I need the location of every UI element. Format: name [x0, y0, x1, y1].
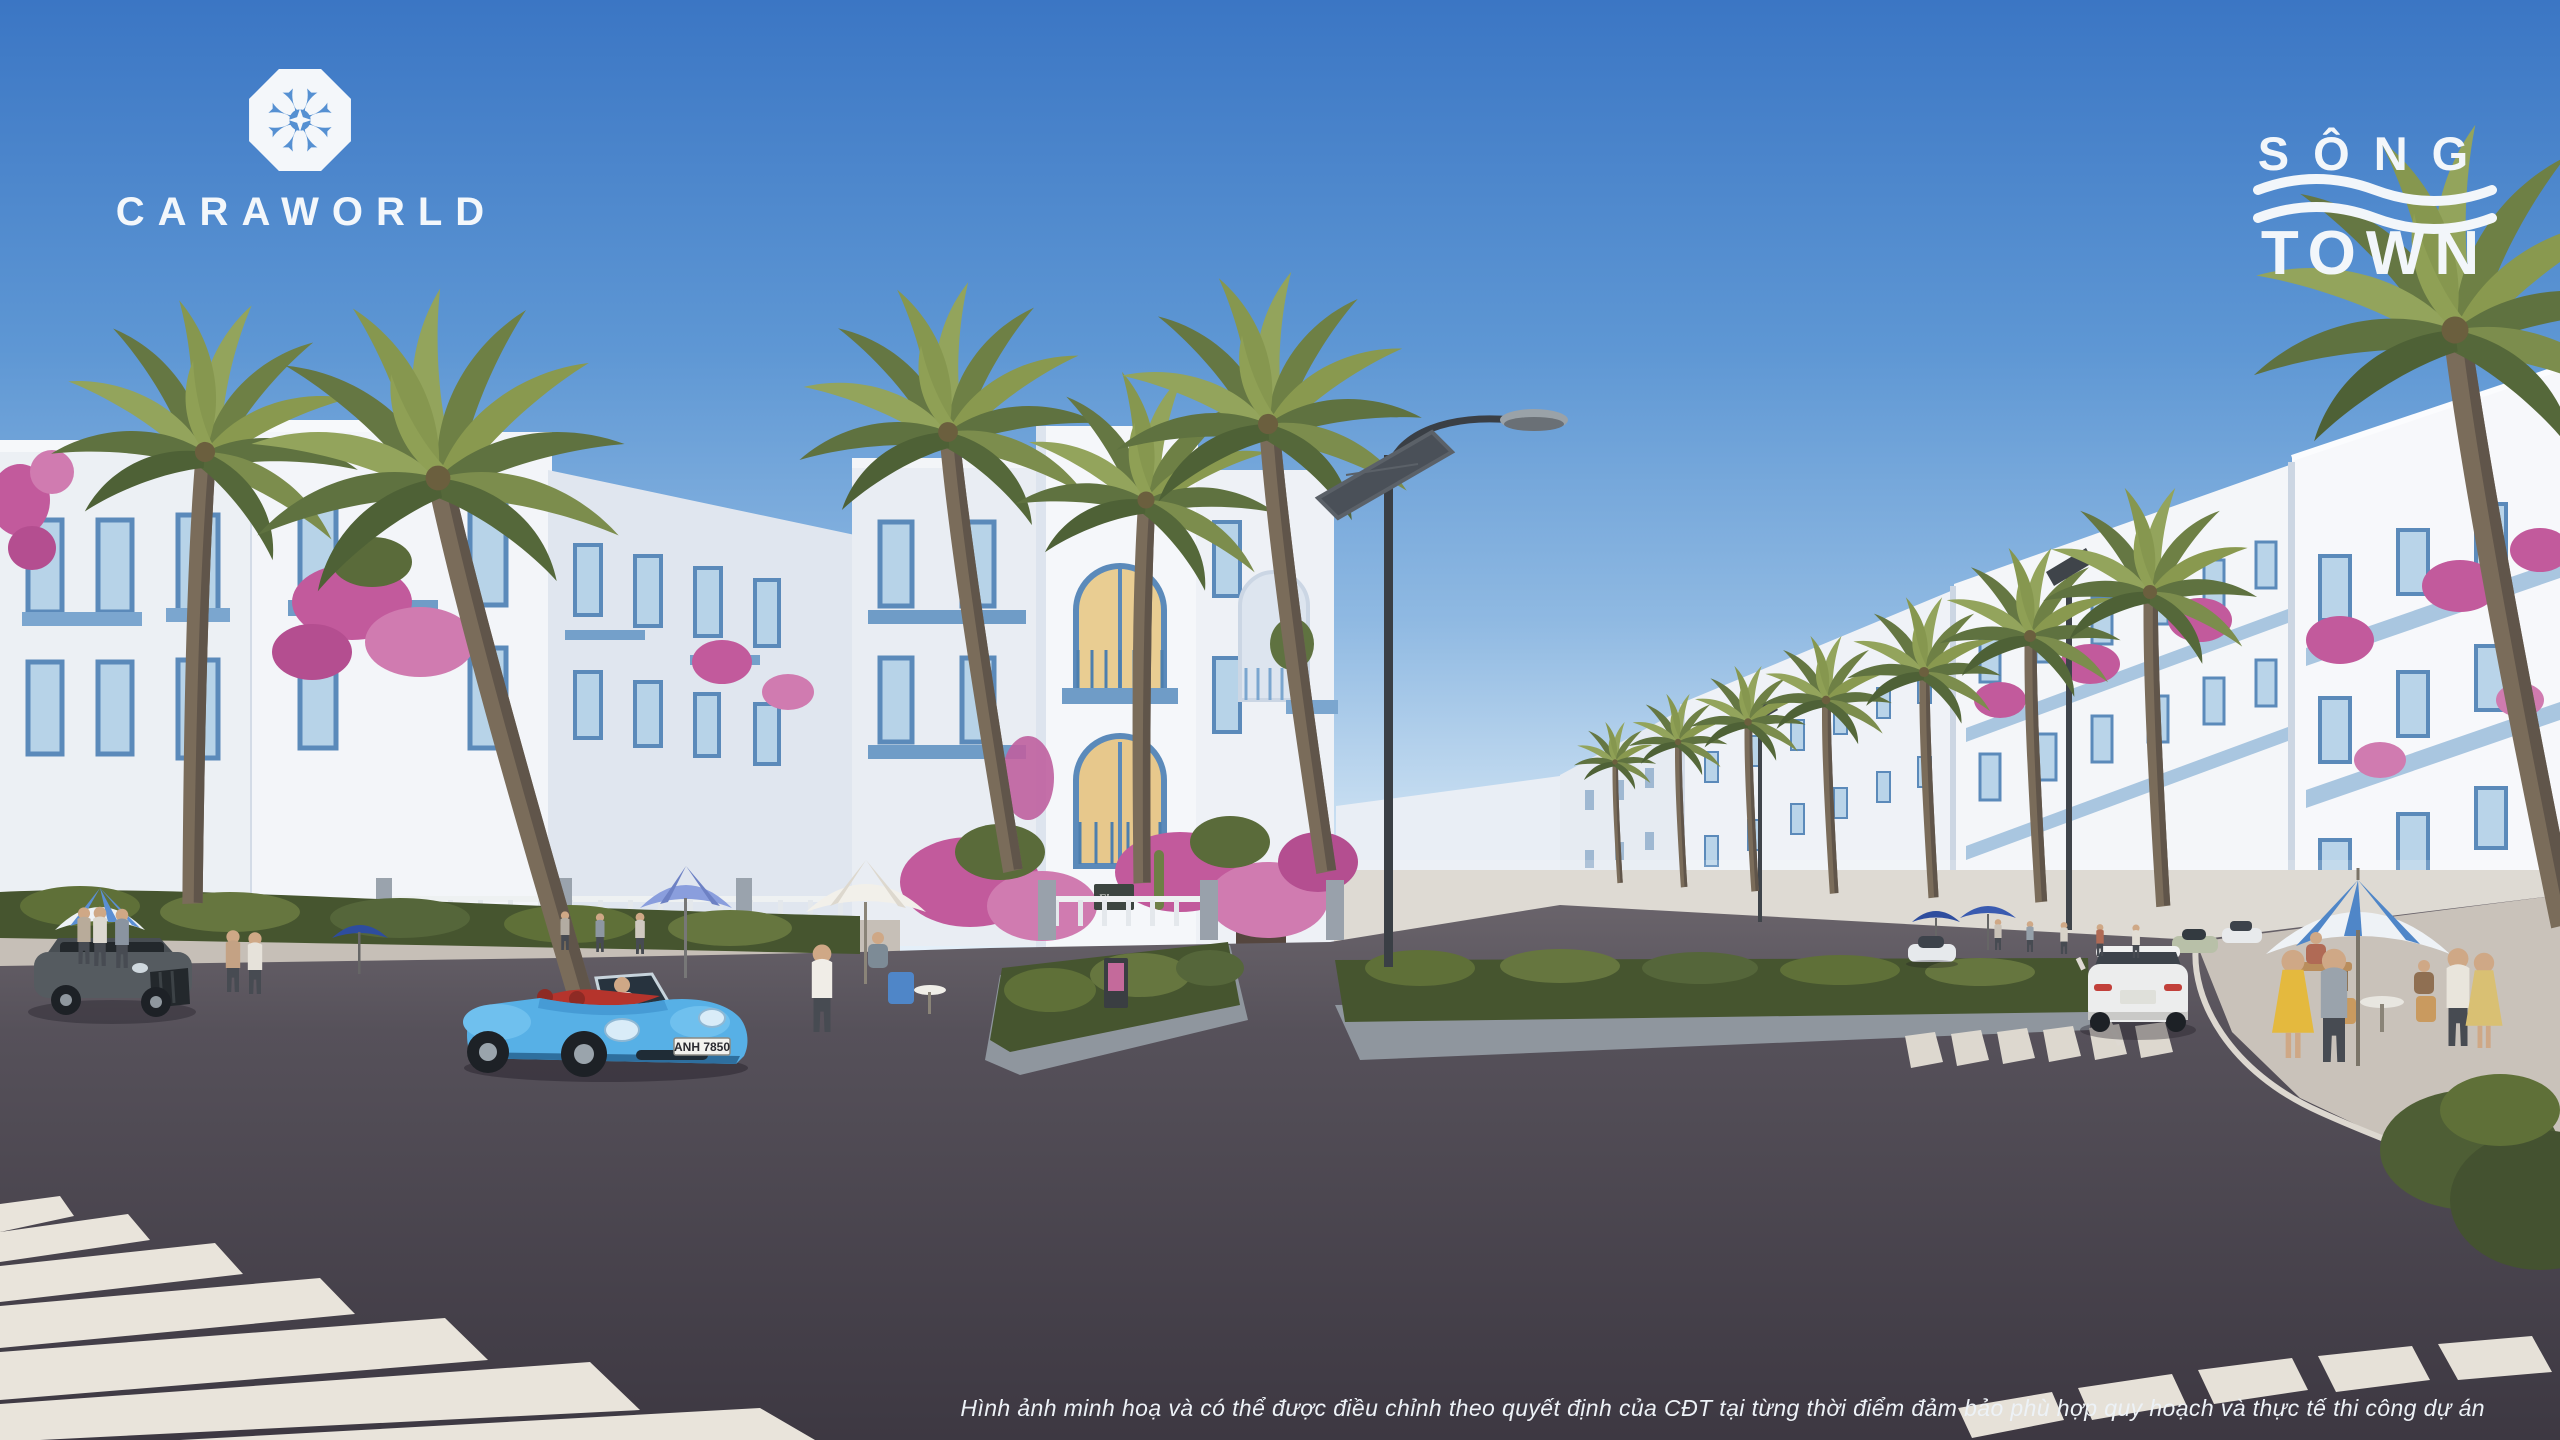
car-bentley-white	[2080, 946, 2196, 1040]
render-scene: Fleurs	[0, 0, 2560, 1440]
disclaimer-text: Hình ảnh minh hoạ và có thể được điều ch…	[960, 1395, 2485, 1422]
car-suv-gray	[28, 938, 196, 1024]
caraworld-wordmark: CARAWORLD	[38, 190, 562, 235]
wave-icon	[2258, 179, 2492, 201]
caraworld-logo: CARAWORLD	[38, 62, 562, 235]
license-plate: ANH 7850	[674, 1038, 730, 1055]
caraworld-rosette-icon	[242, 62, 358, 178]
songtown-line2: TOWN	[2261, 219, 2489, 288]
headlight	[605, 1019, 639, 1041]
license-plate-text: ANH 7850	[674, 1040, 730, 1054]
headlight	[699, 1009, 725, 1027]
songtown-logo: SÔNG TOWN	[2252, 96, 2498, 292]
songtown-line1: SÔNG	[2258, 127, 2492, 180]
sandwich-board-sign	[1104, 958, 1128, 1008]
